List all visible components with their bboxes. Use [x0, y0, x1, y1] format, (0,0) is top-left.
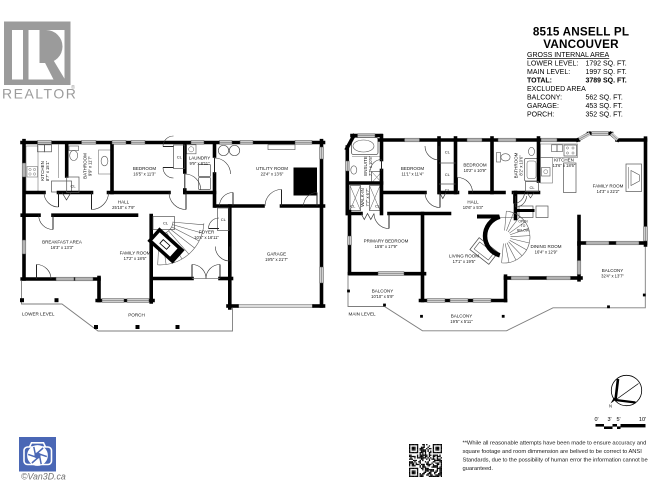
svg-text:LOWER LEVEL: LOWER LEVEL: [22, 312, 55, 317]
svg-text:GROSS INTERNAL AREA: GROSS INTERNAL AREA: [527, 52, 610, 59]
svg-text:25'10" x 7'9": 25'10" x 7'9": [112, 205, 135, 210]
svg-text:16'4" x 12'9": 16'4" x 12'9": [535, 250, 558, 255]
svg-text:LIVING ROOM: LIVING ROOM: [449, 253, 479, 258]
svg-text:8515 ANSELL PL: 8515 ANSELL PL: [533, 26, 629, 39]
svg-text:UTILITY ROOM: UTILITY ROOM: [256, 166, 288, 171]
svg-text:16'3" x 13'3": 16'3" x 13'3": [51, 245, 74, 250]
svg-text:3': 3': [607, 417, 611, 423]
svg-text:PORCH: PORCH: [128, 313, 145, 318]
svg-text:CL: CL: [375, 204, 381, 209]
svg-text:LOWER LEVEL:: LOWER LEVEL:: [527, 61, 578, 68]
svg-text:BALCONY: BALCONY: [602, 268, 624, 273]
svg-text:CL: CL: [529, 185, 535, 190]
svg-text:TO: TO: [521, 224, 526, 228]
svg-text:8'2" x 10'6": 8'2" x 10'6": [519, 155, 524, 176]
svg-text:19'5" x 5'11": 19'5" x 5'11": [450, 319, 473, 324]
svg-text:19'5" x 21'7": 19'5" x 21'7": [265, 257, 288, 262]
svg-text:10'6" x 5'3": 10'6" x 5'3": [463, 205, 484, 210]
svg-text:352 SQ. FT.: 352 SQ. FT.: [586, 112, 623, 119]
svg-text:7'7" x 6'7": 7'7" x 6'7": [365, 188, 370, 206]
svg-text:13'6" x 18'6": 13'6" x 18'6": [553, 163, 576, 168]
svg-text:BEDROOM: BEDROOM: [463, 162, 487, 167]
svg-text:PORCH:: PORCH:: [527, 112, 554, 119]
svg-text:Standards, due to the possibil: Standards, due to the possibility of hum…: [463, 457, 648, 463]
svg-text:MAIN LEVEL: MAIN LEVEL: [349, 312, 377, 317]
svg-text:9'9" x 11'7": 9'9" x 11'7": [88, 156, 93, 176]
svg-text:PRIMARY BEDROOM: PRIMARY BEDROOM: [364, 238, 409, 243]
svg-text:CL: CL: [70, 183, 76, 188]
svg-text:GARAGE: GARAGE: [267, 251, 286, 256]
svg-text:OPEN: OPEN: [518, 220, 528, 224]
svg-text:11'1" x 11'4": 11'1" x 11'4": [401, 172, 424, 177]
svg-text:FOYER: FOYER: [199, 229, 215, 234]
svg-text:EXCLUDED AREA: EXCLUDED AREA: [527, 86, 586, 93]
svg-text:BELOW: BELOW: [517, 229, 530, 233]
svg-text:453 SQ. FT.: 453 SQ. FT.: [586, 103, 623, 110]
svg-text:562 SQ. FT.: 562 SQ. FT.: [586, 95, 623, 102]
svg-text:1997 SQ. FT.: 1997 SQ. FT.: [586, 69, 627, 76]
svg-text:LAUNDRY: LAUNDRY: [189, 155, 210, 160]
svg-text:32'4" x 13'7": 32'4" x 13'7": [601, 274, 624, 279]
svg-text:CL: CL: [177, 155, 183, 160]
svg-text:HALL: HALL: [118, 199, 130, 204]
svg-text:15'8" x 17'9": 15'8" x 17'9": [375, 244, 398, 249]
svg-text:©Van3D.ca: ©Van3D.ca: [21, 472, 66, 482]
svg-text:BEDROOM: BEDROOM: [133, 166, 157, 171]
svg-text:22'4" x 13'6": 22'4" x 13'6": [261, 172, 284, 177]
svg-text:GARAGE:: GARAGE:: [527, 103, 559, 110]
svg-text:9'9" x 8'11": 9'9" x 8'11": [189, 161, 210, 166]
svg-text:7'7" x 10'5": 7'7" x 10'5": [368, 155, 373, 176]
svg-text:KITCHEN: KITCHEN: [554, 157, 574, 162]
svg-text:BEDROOM: BEDROOM: [401, 166, 425, 171]
svg-text:0': 0': [594, 417, 598, 423]
svg-text:16'5" x 11'3": 16'5" x 11'3": [133, 172, 156, 177]
svg-text:10'2" x 10'9": 10'2" x 10'9": [464, 168, 487, 173]
svg-text:guaranteed.: guaranteed.: [463, 466, 494, 472]
svg-text:FAMILY ROOM: FAMILY ROOM: [593, 183, 624, 188]
svg-text:®: ®: [71, 84, 75, 91]
svg-text:BALCONY:: BALCONY:: [527, 95, 562, 102]
svg-text:3789 SQ. FT.: 3789 SQ. FT.: [586, 78, 627, 85]
svg-text:BALCONY: BALCONY: [451, 313, 473, 318]
svg-text:MAIN LEVEL:: MAIN LEVEL:: [527, 69, 570, 76]
svg-text:FAMILY ROOM: FAMILY ROOM: [120, 250, 151, 255]
svg-text:17'1" x 19'5": 17'1" x 19'5": [453, 259, 476, 264]
svg-text:CL: CL: [445, 188, 451, 193]
svg-text:8'7" x 15'1": 8'7" x 15'1": [45, 160, 50, 181]
svg-text:REALTOR: REALTOR: [2, 86, 77, 102]
svg-text:TOTAL:: TOTAL:: [527, 78, 552, 85]
svg-text:10'4" x 16'11": 10'4" x 16'11": [194, 235, 219, 240]
svg-text:CL: CL: [221, 217, 227, 222]
svg-text:CL: CL: [350, 204, 356, 209]
svg-text:square footage and room dimmen: square footage and room dimmension are b…: [463, 449, 643, 455]
svg-text:DINING ROOM: DINING ROOM: [531, 244, 562, 249]
svg-text:BALCONY: BALCONY: [372, 288, 394, 293]
svg-text:CL: CL: [163, 221, 169, 226]
svg-text:BREAKFAST AREA: BREAKFAST AREA: [42, 239, 82, 244]
svg-text:14'3" x 22'2": 14'3" x 22'2": [597, 189, 620, 194]
svg-text:CL: CL: [445, 150, 451, 155]
svg-text:17'2" x 18'6": 17'2" x 18'6": [124, 256, 147, 261]
svg-text:CL: CL: [445, 172, 451, 177]
svg-text:10': 10': [639, 417, 646, 423]
svg-text:1792 SQ. FT.: 1792 SQ. FT.: [586, 61, 627, 68]
svg-text:5': 5': [616, 417, 620, 423]
svg-text:N: N: [609, 404, 612, 409]
svg-text:HALL: HALL: [467, 199, 479, 204]
svg-text:**While all reasonable attempt: **While all reasonable attempts have bee…: [463, 440, 647, 446]
svg-text:VANCOUVER: VANCOUVER: [543, 38, 619, 51]
svg-text:10'10" x 5'9": 10'10" x 5'9": [371, 294, 394, 299]
